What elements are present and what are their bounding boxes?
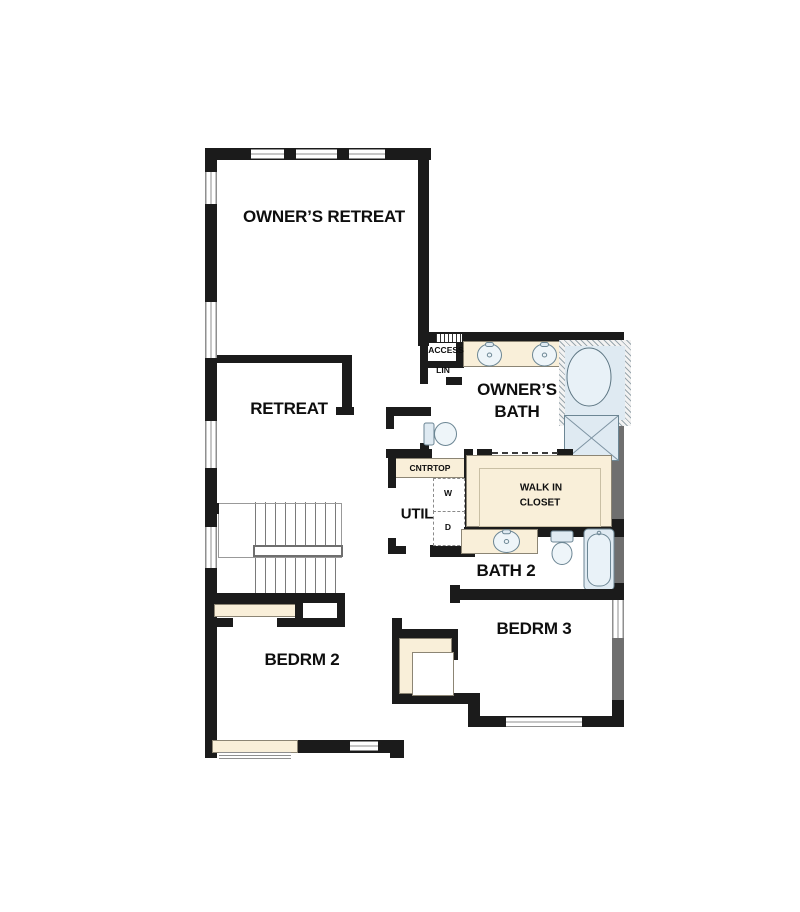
label-lin: LIN: [436, 365, 450, 375]
room-label-bath2: BATH 2: [477, 561, 536, 581]
wall-segment: [446, 377, 462, 385]
room-label-walk-in-line2: CLOSET: [520, 498, 561, 509]
room-label-walk-in-line1: WALK IN: [520, 483, 562, 494]
bedrm2-closet-shelf: [214, 604, 297, 617]
window-mullion: [337, 148, 349, 160]
label-washer: W: [444, 488, 452, 498]
attic-access-hatch-icon: [436, 334, 462, 342]
window: [251, 149, 385, 159]
wall-segment: [388, 452, 396, 488]
staircase: [217, 502, 343, 593]
sink-icon: [475, 341, 504, 368]
bay-window: [219, 752, 291, 759]
room-label-owners-bath-line1: OWNER’S: [477, 380, 557, 400]
window: [506, 717, 582, 727]
toilet-icon: [423, 420, 459, 448]
wall-segment: [342, 355, 352, 411]
window: [205, 527, 217, 568]
wall-segment: [212, 618, 233, 627]
room-label-util: UTIL: [401, 506, 434, 523]
wall-segment: [400, 629, 450, 638]
window: [350, 741, 378, 751]
sink-icon: [530, 341, 559, 368]
wall-segment: [418, 148, 429, 346]
room-label-bedrm3: BEDRM 3: [496, 619, 571, 639]
room-label-owners-retreat: OWNER’S RETREAT: [243, 207, 405, 227]
soaking-tub-icon: [559, 340, 631, 426]
bedrm3-closet-inset: [412, 652, 454, 696]
wall-segment: [452, 589, 624, 600]
wall-segment: [468, 702, 480, 722]
bathtub-icon: [583, 528, 615, 591]
label-access: ACCESS: [428, 345, 463, 355]
sink-icon: [491, 529, 522, 554]
wall-segment: [217, 355, 350, 363]
room-label-owners-bath-line2: BATH: [494, 402, 539, 422]
window: [612, 600, 624, 638]
room-label-retreat: RETREAT: [250, 399, 328, 419]
wall-segment: [388, 546, 406, 554]
room-label-bedrm2: BEDRM 2: [264, 650, 339, 670]
toilet-icon: [549, 530, 575, 566]
window: [205, 172, 217, 204]
window: [205, 302, 217, 358]
label-cntrtop: CNTRTOP: [410, 463, 451, 473]
label-dryer: D: [445, 522, 451, 532]
wall-segment: [205, 503, 219, 514]
wall-segment: [450, 585, 460, 603]
wall-segment: [336, 407, 354, 415]
window: [205, 421, 217, 468]
stair-handrail: [253, 545, 343, 557]
wall-segment: [390, 740, 404, 758]
wall-segment: [277, 618, 345, 627]
window-mullion: [284, 148, 296, 160]
floor-plan: OWNER’S RETREAT RETREAT OWNER’S BATH ACC…: [0, 0, 800, 912]
wall-segment: [386, 407, 394, 429]
